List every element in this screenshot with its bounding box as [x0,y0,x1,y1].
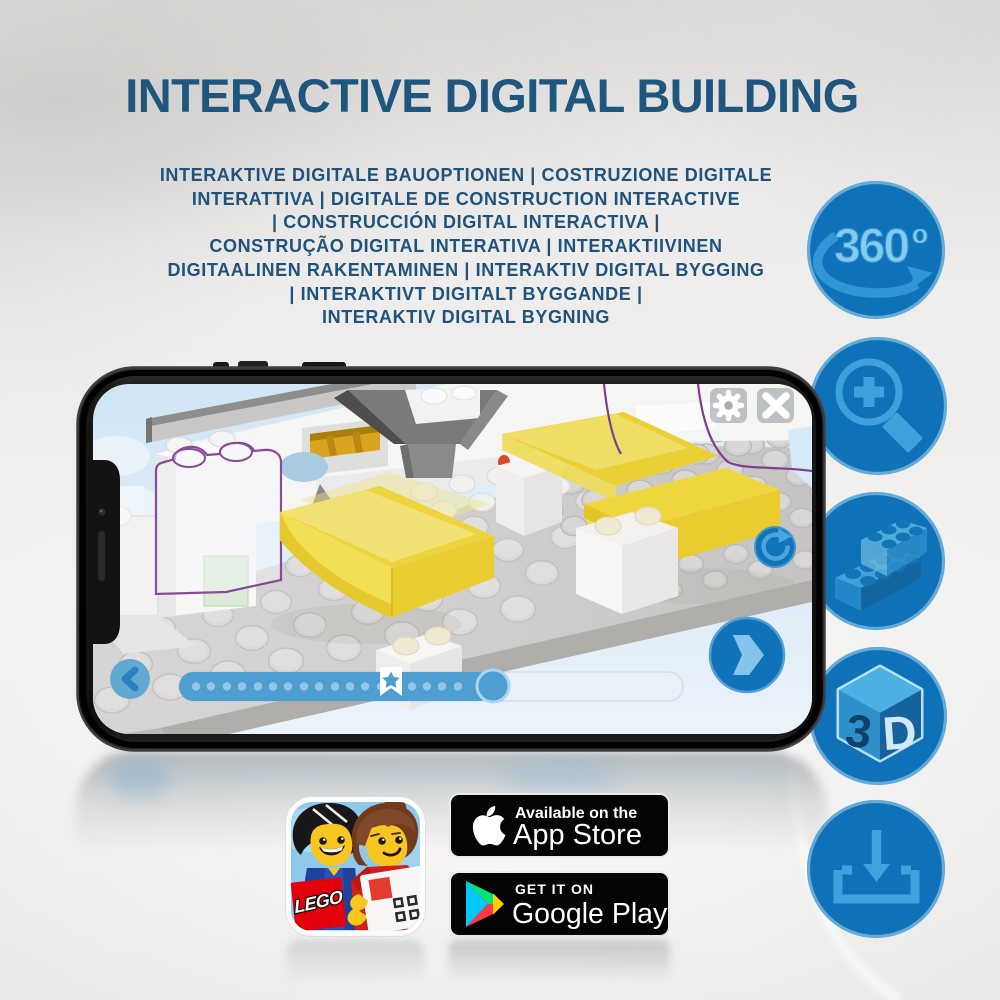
svg-text:Google Play: Google Play [512,898,668,930]
svg-text:GET IT ON: GET IT ON [515,881,594,897]
svg-text:360: 360 [834,220,908,273]
svg-text:D: D [881,705,919,760]
svg-text:o: o [912,219,929,249]
svg-text:App Store: App Store [513,819,642,851]
